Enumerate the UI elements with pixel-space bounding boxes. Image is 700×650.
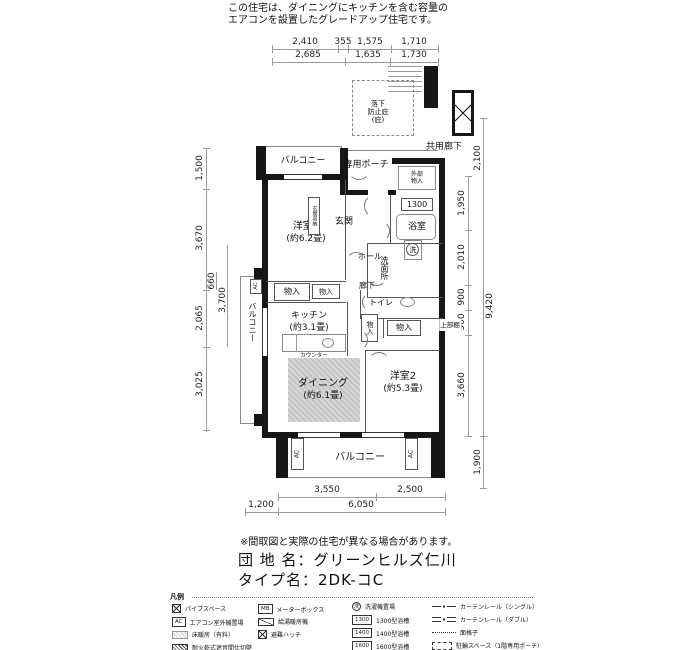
curtain-rail-single-icon	[432, 605, 456, 608]
wall-int	[365, 350, 440, 351]
dim-line	[272, 62, 438, 63]
storage-label: 物入	[366, 321, 374, 335]
bicycle-space-icon	[432, 642, 452, 650]
dim-tick	[465, 310, 472, 311]
wall-int	[390, 195, 391, 243]
dim-top: 2,410	[292, 37, 318, 47]
meter-box-icon: MB	[258, 604, 273, 614]
ac-box-icon: AC	[172, 617, 186, 627]
note-line1: この住宅は、ダイニングにキッチンを含む容量の	[228, 3, 448, 15]
dim-bottom: 6,050	[348, 500, 374, 510]
legend-item: 駐輪スペース（1階専用ポーチ）	[432, 641, 543, 650]
dim-tick	[203, 148, 210, 149]
curtain-rail-double-icon	[432, 617, 456, 622]
dim-left: 3,670	[195, 225, 205, 251]
dim-top: 355	[334, 37, 351, 47]
estate-name: 団 地 名：グリーンヒルズ仁川	[238, 549, 457, 570]
toilet-fixture	[400, 297, 415, 307]
legend-item: カーテンレール（シングル）	[432, 602, 538, 611]
dim-top: 2,685	[295, 50, 321, 60]
dim-tick	[465, 335, 472, 336]
wall-top-right	[392, 158, 445, 164]
dim-left: 3,700	[218, 287, 228, 313]
dim-tick	[272, 58, 273, 66]
door-arc-dining	[348, 330, 368, 350]
dim-tick	[203, 430, 210, 431]
dim-tick	[203, 189, 210, 190]
dim-right: 1,900	[473, 449, 483, 475]
dim-tick	[465, 230, 472, 231]
dim-line	[468, 176, 469, 436]
wall-int	[347, 302, 348, 356]
room-label-yoshitsu2: 洋室2 (約5.3畳)	[383, 371, 422, 395]
laundry-label: 洗	[410, 244, 417, 256]
wall-right	[439, 158, 445, 438]
dim-left: 1,500	[195, 155, 205, 181]
floorplan-page: この住宅は、ダイニングにキッチンを含む容量の エアコンを設置したグレードアップ住…	[0, 0, 700, 650]
dim-line	[245, 512, 445, 513]
bath-model-label: 1300	[407, 199, 427, 211]
pipe-shaft-box	[452, 90, 474, 136]
door-arc-genkan	[364, 194, 388, 218]
wall-entry	[346, 190, 368, 195]
wall-balcony-post	[431, 432, 445, 478]
legend-title: 凡例	[170, 592, 184, 602]
legend-item: 面格子	[432, 628, 478, 637]
dim-right: 2,100	[473, 145, 483, 171]
dim-tick	[278, 493, 279, 501]
window	[262, 308, 268, 356]
legend-item: パイプスペース	[172, 604, 226, 613]
legend-item: 1300 1300型浴槽	[352, 615, 409, 625]
door-arc-yoshitsu2	[368, 352, 390, 374]
dim-tick	[480, 118, 487, 119]
floor-heating-icon	[172, 631, 188, 639]
legend-item: 1400 1400型浴槽	[352, 628, 409, 638]
pipe-space-icon	[172, 604, 181, 613]
dim-tick	[345, 58, 346, 66]
counter-divider	[296, 334, 297, 352]
legend-item: 洗 洗濯機置場	[352, 602, 395, 611]
dim-line	[483, 118, 484, 488]
wall	[424, 66, 438, 108]
upper-shelf-label: 上部棚	[439, 319, 461, 331]
legend-item: AC エアコン室外機置場	[172, 617, 244, 627]
dim-tick	[465, 436, 472, 437]
note-line2: エアコンを設置したグレードアップ住宅です。	[228, 15, 437, 27]
dim-right-total: 9,420	[485, 293, 495, 319]
dim-tick	[445, 508, 446, 516]
dim-tick	[245, 508, 246, 516]
legend-item: 耐火乾式遮音間仕切壁	[172, 643, 252, 650]
wall-int	[266, 302, 346, 303]
room-label-balcony-left: バルコニー	[246, 302, 258, 342]
dim-bottom: 1,200	[248, 500, 274, 510]
door-arc-toilet	[362, 293, 380, 311]
wall-balcony-post	[276, 432, 288, 478]
bathtub-1600-icon: 1600	[352, 641, 372, 650]
dim-bottom: 2,500	[397, 485, 423, 495]
wall-int	[383, 318, 384, 338]
door-arc-washroom	[368, 268, 386, 286]
laundry-icon: 洗	[352, 602, 361, 611]
dim-left: 3,025	[195, 371, 205, 397]
dim-tick	[390, 58, 391, 66]
door-arc-bath	[370, 221, 390, 241]
storage-label: 物入	[396, 322, 412, 334]
fireproof-wall-icon	[172, 644, 188, 650]
wall-bottom	[262, 432, 445, 438]
legend-item: 給湯暖房機	[258, 617, 308, 626]
dim-tick	[376, 493, 377, 501]
storage-label: 物入	[284, 286, 300, 298]
bathtub	[396, 214, 436, 240]
ac-outdoor-unit-label: AC	[408, 450, 415, 458]
window	[284, 174, 322, 180]
dim-tick	[445, 493, 446, 501]
dim-tick	[465, 285, 472, 286]
dim-left: 2,065	[195, 305, 205, 331]
canopy-label: 落下 防止庇 (庇)	[368, 100, 389, 124]
dim-tick	[203, 347, 210, 348]
legend-item: カーテンレール（ダブル）	[432, 615, 532, 624]
dim-tick	[272, 45, 273, 53]
door-arc-yoshitsu1	[346, 252, 366, 272]
legend-item: 床暖房（有料）	[172, 630, 234, 639]
porch-line	[348, 150, 438, 151]
water-heater-icon	[258, 618, 274, 626]
dim-tick	[438, 45, 439, 53]
dim-top: 1,575	[357, 37, 383, 47]
dim-tick	[465, 176, 472, 177]
dim-tick	[480, 436, 487, 437]
type-name: タイプ名：2DK-コC	[238, 569, 384, 590]
legend-item: MB メーターボックス	[258, 604, 324, 614]
dim-top: 1,635	[355, 50, 381, 60]
legend-rule	[192, 597, 533, 598]
legend-item: 1600 1600型浴槽	[352, 641, 409, 650]
bathtub-1300-icon: 1300	[352, 615, 372, 625]
dim-right: 3,660	[457, 372, 467, 398]
room-label-kitchen: キッチン (約3.1畳)	[289, 310, 328, 334]
disclaimer: ※間取図と実際の住宅が異なる場合があります。	[240, 533, 457, 548]
outer-storage-label: 外部 物入	[411, 171, 423, 185]
room-label-balcony-bottom: バルコニー	[335, 452, 385, 464]
dim-left: 660	[207, 272, 217, 289]
room-label-genkan: 玄関	[335, 216, 353, 228]
wall-porch	[340, 148, 348, 195]
ac-outdoor-unit-label: AC	[253, 282, 259, 290]
dim-top: 1,710	[401, 37, 427, 47]
window-grille-icon	[432, 632, 456, 633]
room-label-balcony-top: バルコニー	[281, 155, 326, 167]
wall-int	[365, 350, 366, 432]
dim-tick	[438, 58, 439, 66]
dim-tick	[391, 45, 392, 53]
window	[298, 432, 340, 438]
kitchen-sink	[322, 338, 334, 348]
dim-right: 1,950	[457, 190, 467, 216]
storage-label: 物入	[319, 288, 333, 296]
genkan-storage-label: 玄関収納	[312, 206, 317, 226]
dim-tick	[348, 45, 349, 53]
ac-outdoor-unit-label: AC	[294, 450, 301, 458]
dim-top: 1,730	[401, 50, 427, 60]
dim-tick	[480, 488, 487, 489]
dim-tick	[203, 290, 210, 291]
room-label-dining: ダイニング (約6.1畳)	[298, 378, 348, 402]
dim-tick	[278, 508, 279, 516]
dim-right: 2,010	[457, 244, 467, 270]
escape-hatch-icon	[258, 630, 267, 639]
wall-left	[262, 174, 268, 438]
door-arc-porch	[348, 158, 370, 180]
dim-right: 900	[457, 288, 467, 305]
dim-tick	[338, 45, 339, 53]
window	[362, 432, 404, 438]
dim-bottom: 3,550	[314, 485, 340, 495]
wall-int	[266, 281, 346, 282]
room-label-common-corridor: 共用廊下	[426, 141, 462, 153]
legend-item: 避難ハッチ	[258, 630, 301, 639]
bathtub-1400-icon: 1400	[352, 628, 372, 638]
dim-line	[278, 497, 445, 498]
